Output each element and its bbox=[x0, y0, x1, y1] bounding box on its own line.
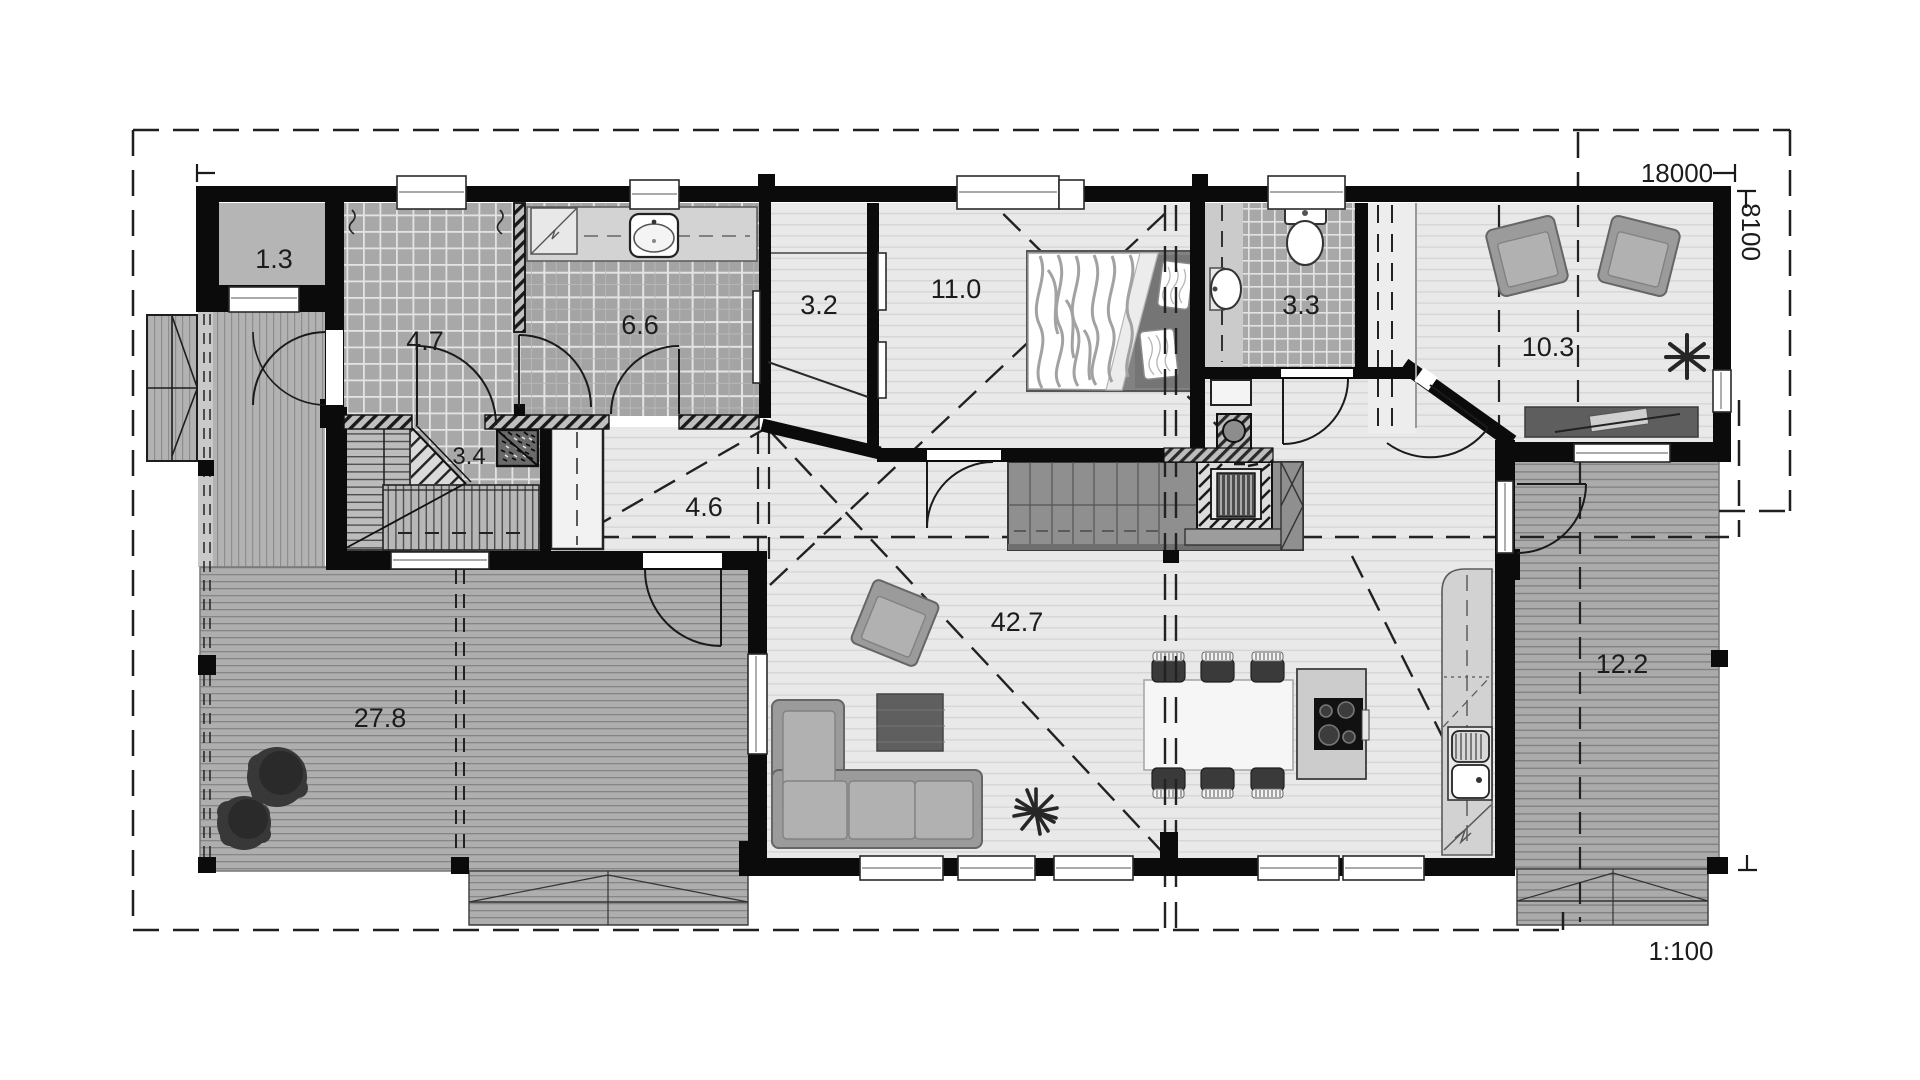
svg-text:10.3: 10.3 bbox=[1522, 332, 1575, 362]
svg-text:6.6: 6.6 bbox=[621, 310, 659, 340]
svg-text:3.3: 3.3 bbox=[1282, 290, 1320, 320]
svg-text:11.0: 11.0 bbox=[931, 274, 982, 304]
svg-text:12.2: 12.2 bbox=[1596, 649, 1649, 679]
svg-text:4.6: 4.6 bbox=[685, 492, 723, 522]
svg-text:42.7: 42.7 bbox=[991, 607, 1044, 637]
svg-text:3.2: 3.2 bbox=[800, 290, 838, 320]
svg-text:1:100: 1:100 bbox=[1648, 936, 1713, 966]
svg-text:27.8: 27.8 bbox=[354, 703, 407, 733]
svg-text:8100: 8100 bbox=[1736, 203, 1766, 261]
svg-text:4.7: 4.7 bbox=[406, 326, 444, 356]
svg-text:3.4: 3.4 bbox=[452, 443, 485, 470]
svg-text:1.3: 1.3 bbox=[255, 244, 293, 274]
svg-text:18000: 18000 bbox=[1641, 158, 1713, 188]
